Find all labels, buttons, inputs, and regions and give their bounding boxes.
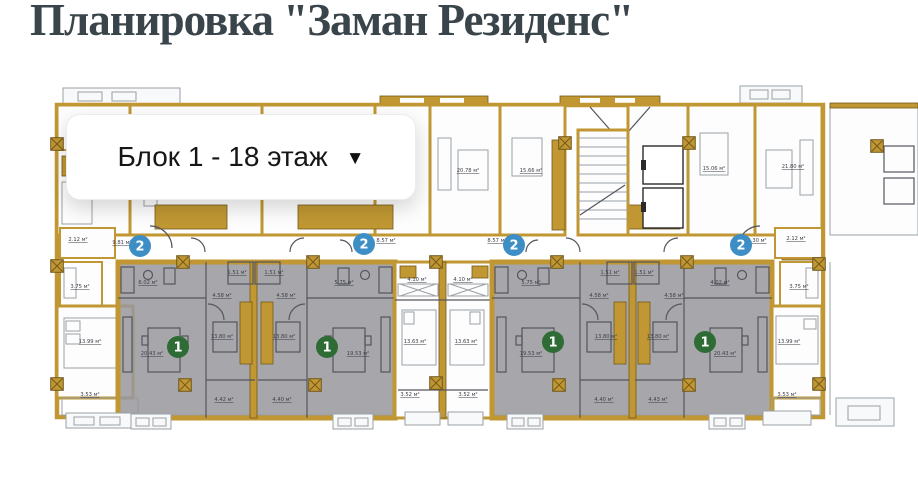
room-area-label: 4.58 м² xyxy=(589,293,608,299)
floor-selector-label: Блок 1 - 18 этаж xyxy=(118,141,328,173)
room-area-label: 1.51 м² xyxy=(600,270,619,276)
room-area-label: 4.40 м² xyxy=(272,397,291,403)
rooms-2-badge[interactable]: 2 xyxy=(353,233,375,255)
room-area-label: 19.53 м² xyxy=(520,351,543,357)
room-area-label: 4.58 м² xyxy=(276,293,295,299)
room-area-label: 8.57 м² xyxy=(376,238,395,244)
room-area-label: 4.58 м² xyxy=(664,293,683,299)
svg-text:2: 2 xyxy=(736,239,745,254)
room-area-label: 4.42 м² xyxy=(214,397,233,403)
rooms-2-badge[interactable]: 2 xyxy=(730,234,752,256)
room-area-label: 4.10 м² xyxy=(453,277,472,283)
rooms-1-badge[interactable]: 1 xyxy=(542,331,564,353)
room-area-label: 3.52 м² xyxy=(458,392,477,398)
room-area-label: 20.78 м² xyxy=(457,168,480,174)
room-area-label: 4.02 м² xyxy=(710,280,729,286)
room-area-label: 15.66 м² xyxy=(520,168,543,174)
room-area-label: 20.43 м² xyxy=(714,351,737,357)
floor-selector[interactable]: Блок 1 - 18 этаж ▼ xyxy=(66,114,416,200)
room-area-label: 4.58 м² xyxy=(212,293,231,299)
rooms-2-badge[interactable]: 2 xyxy=(503,234,525,256)
svg-text:2: 2 xyxy=(135,240,144,255)
room-area-label: 3.75 м² xyxy=(70,284,89,290)
elevator-2 xyxy=(643,188,683,228)
annex-cutoff xyxy=(830,103,918,426)
svg-text:1: 1 xyxy=(322,341,331,356)
room-area-label: 13.80 м² xyxy=(273,334,296,340)
room-area-label: 13.99 м² xyxy=(778,339,801,345)
room-area-label: 4.10 м² xyxy=(407,277,426,283)
page: Планировка "Заман Резиденс" xyxy=(0,0,918,500)
room-area-label: 15.06 м² xyxy=(703,166,726,172)
room-area-label: 4.43 м² xyxy=(648,397,667,403)
room-area-label: 1.51 м² xyxy=(264,270,283,276)
room-area-label: 2.12 м² xyxy=(68,237,87,243)
room-area-label: 6.02 м² xyxy=(138,280,157,286)
room-area-label: 4.40 м² xyxy=(594,397,613,403)
svg-text:2: 2 xyxy=(509,239,518,254)
room-area-label: 13.63 м² xyxy=(404,339,427,345)
room-area-label: 13.99 м² xyxy=(79,339,102,345)
page-title: Планировка "Заман Резиденс" xyxy=(30,0,633,46)
room-area-label: 20.43 м² xyxy=(141,351,164,357)
room-area-label: 1.51 м² xyxy=(634,270,653,276)
svg-text:2: 2 xyxy=(359,238,368,253)
rooms-2-badge[interactable]: 2 xyxy=(129,235,151,257)
room-area-label: 5.75 м² xyxy=(521,280,540,286)
rooms-1-badge[interactable]: 1 xyxy=(316,336,338,358)
room-area-label: 3.75 м² xyxy=(789,284,808,290)
room-area-label: 2.12 м² xyxy=(786,236,805,242)
room-area-label: 13.63 м² xyxy=(455,339,478,345)
svg-text:1: 1 xyxy=(548,336,557,351)
stairwell xyxy=(578,130,628,235)
room-area-label: 13.80 м² xyxy=(211,334,234,340)
room-area-label: 3.52 м² xyxy=(400,392,419,398)
room-area-label: 9.81 м² xyxy=(112,240,131,246)
room-area-label: 3.53 м² xyxy=(777,392,796,398)
room-area-label: 1.51 м² xyxy=(227,270,246,276)
room-area-label: 19.53 м² xyxy=(347,351,370,357)
svg-text:1: 1 xyxy=(173,341,182,356)
room-area-label: 13.80 м² xyxy=(647,334,670,340)
room-area-label: 21.80 м² xyxy=(782,164,805,170)
chevron-down-icon: ▼ xyxy=(346,148,365,170)
rooms-1-badge[interactable]: 1 xyxy=(694,331,716,353)
room-area-label: 3.53 м² xyxy=(80,392,99,398)
room-area-label: 5.75 м² xyxy=(334,280,353,286)
elevator-1 xyxy=(643,146,683,184)
svg-text:1: 1 xyxy=(700,336,709,351)
rooms-1-badge[interactable]: 1 xyxy=(167,336,189,358)
room-area-label: 13.80 м² xyxy=(595,334,618,340)
floor-plan: 2.12 м²9.81 м²3.75 м²13.99 м²3.53 м²6.02… xyxy=(0,0,918,500)
